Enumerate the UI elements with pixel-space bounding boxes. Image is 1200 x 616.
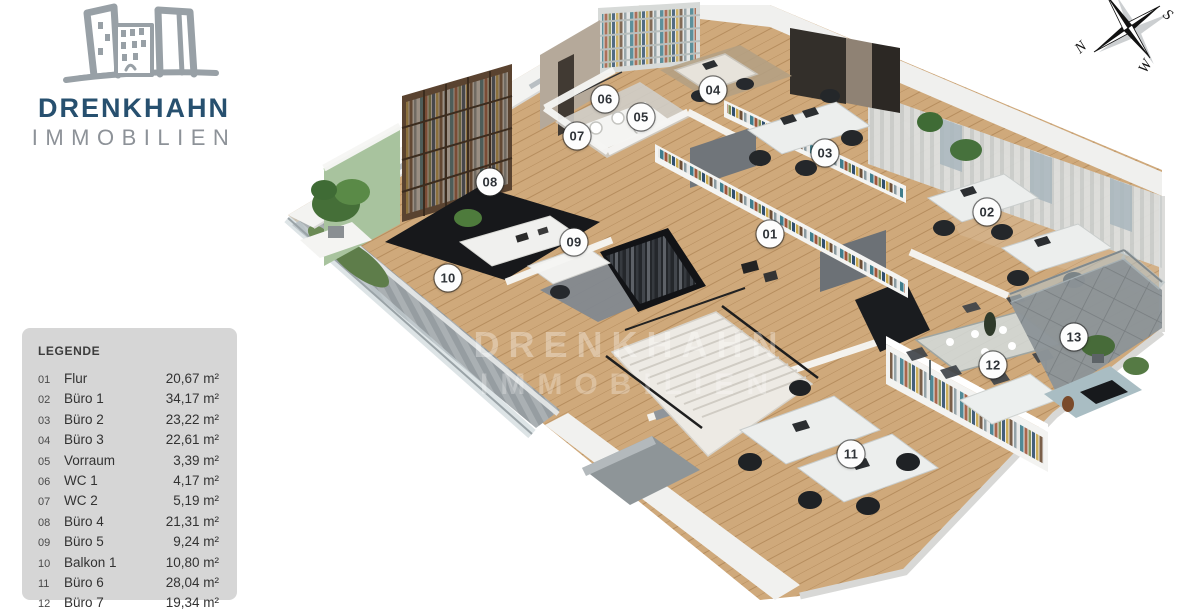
room-marker-12: 12: [980, 352, 1007, 379]
room-marker-03: 03: [812, 140, 839, 167]
page-root: DRENKHAHN IMMOBILIEN S N W DRENKHAHN IMM…: [0, 0, 1200, 600]
room-marker-01: 01: [757, 221, 784, 248]
room-marker-05: 05: [628, 104, 655, 131]
room-marker-13: 13: [1061, 324, 1088, 351]
room-marker-04: 04: [700, 77, 727, 104]
room-marker-02: 02: [974, 199, 1001, 226]
room-marker-06: 06: [592, 86, 619, 113]
room-marker-11: 11: [838, 441, 865, 468]
room-marker-08: 08: [477, 169, 504, 196]
legend-row-number: 12: [38, 598, 64, 610]
room-marker-09: 09: [561, 229, 588, 256]
room-markers-layer: 01020304050607080910111213: [0, 0, 1200, 600]
room-marker-10: 10: [435, 265, 462, 292]
room-marker-07: 07: [564, 123, 591, 150]
